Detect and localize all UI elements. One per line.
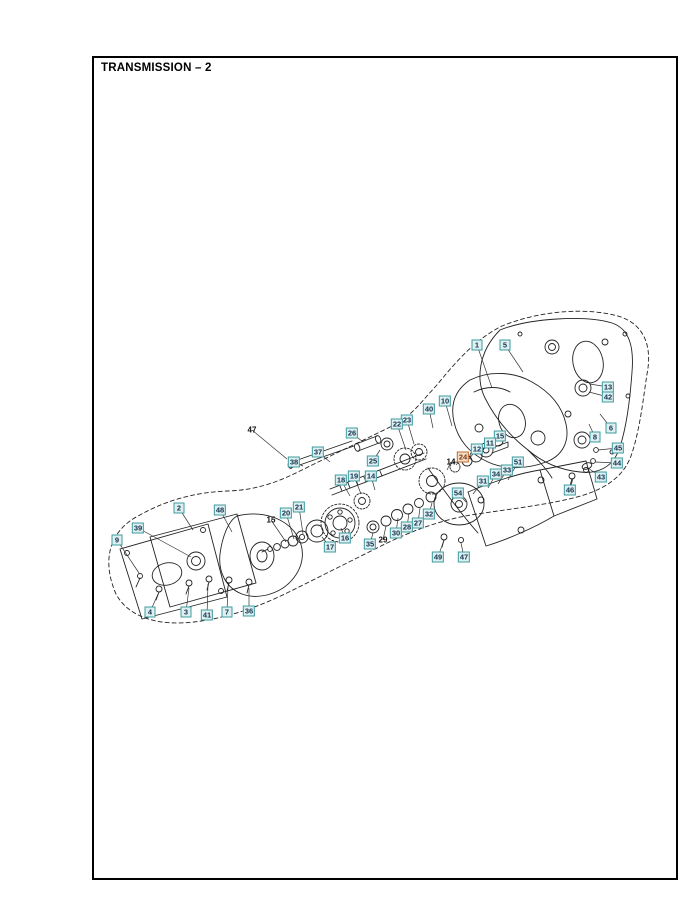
content-frame xyxy=(92,56,678,880)
page-title: TRANSMISSION – 2 xyxy=(101,62,212,74)
